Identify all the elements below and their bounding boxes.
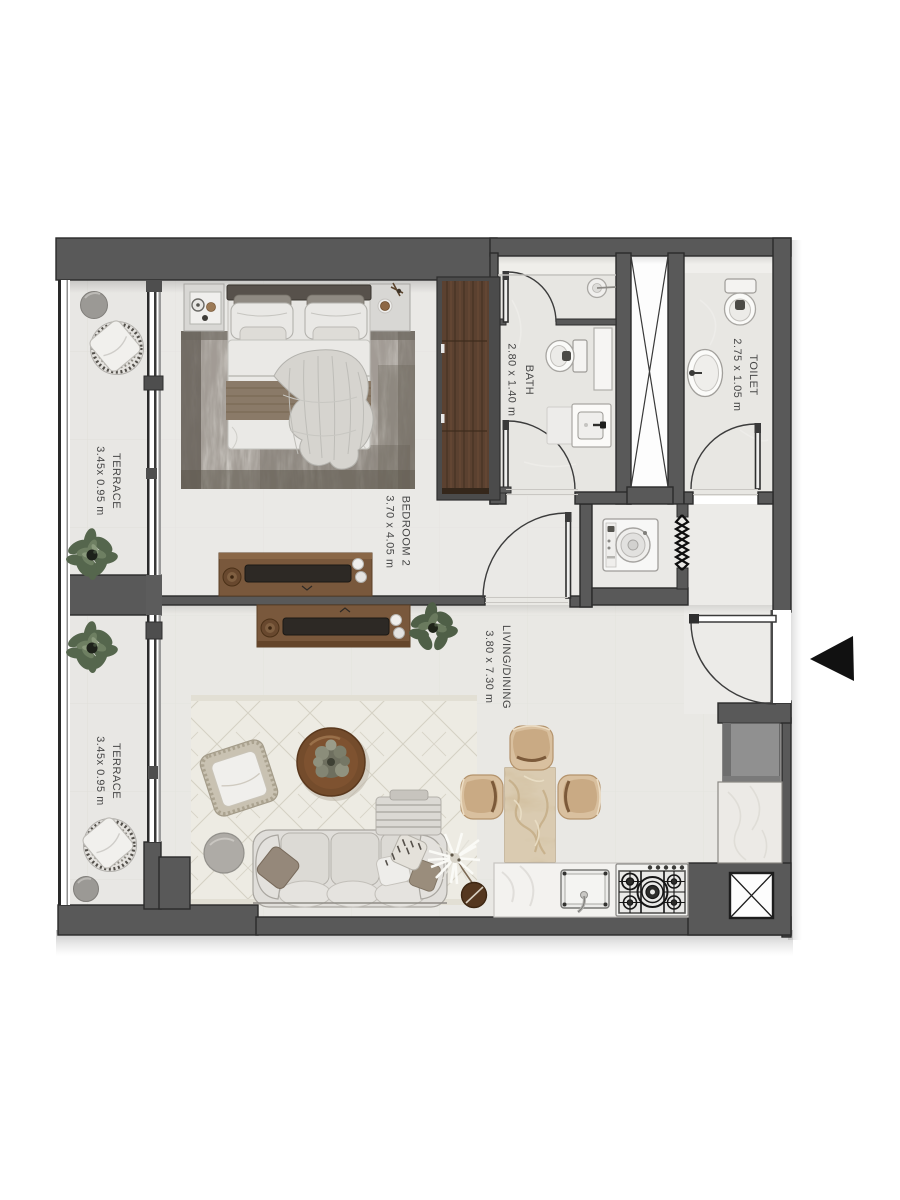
svg-text:LIVING/DINING: LIVING/DINING [500,625,512,709]
svg-text:TERRACE: TERRACE [110,743,122,799]
svg-text:TERRACE: TERRACE [110,453,122,509]
svg-text:TOILET: TOILET [747,354,759,395]
svg-text:BEDROOM 2: BEDROOM 2 [400,496,412,567]
svg-text:2.75 x 1.05 m: 2.75 x 1.05 m [731,338,743,411]
svg-text:3.70 x 4.05 m: 3.70 x 4.05 m [384,495,396,568]
svg-text:BATH: BATH [523,365,535,396]
svg-text:3.45x 0.95 m: 3.45x 0.95 m [94,446,106,516]
svg-text:2.80 x 1.40 m: 2.80 x 1.40 m [506,343,518,416]
svg-text:3.80 x 7.30 m: 3.80 x 7.30 m [483,630,495,703]
svg-text:3.45x 0.95 m: 3.45x 0.95 m [94,736,106,806]
